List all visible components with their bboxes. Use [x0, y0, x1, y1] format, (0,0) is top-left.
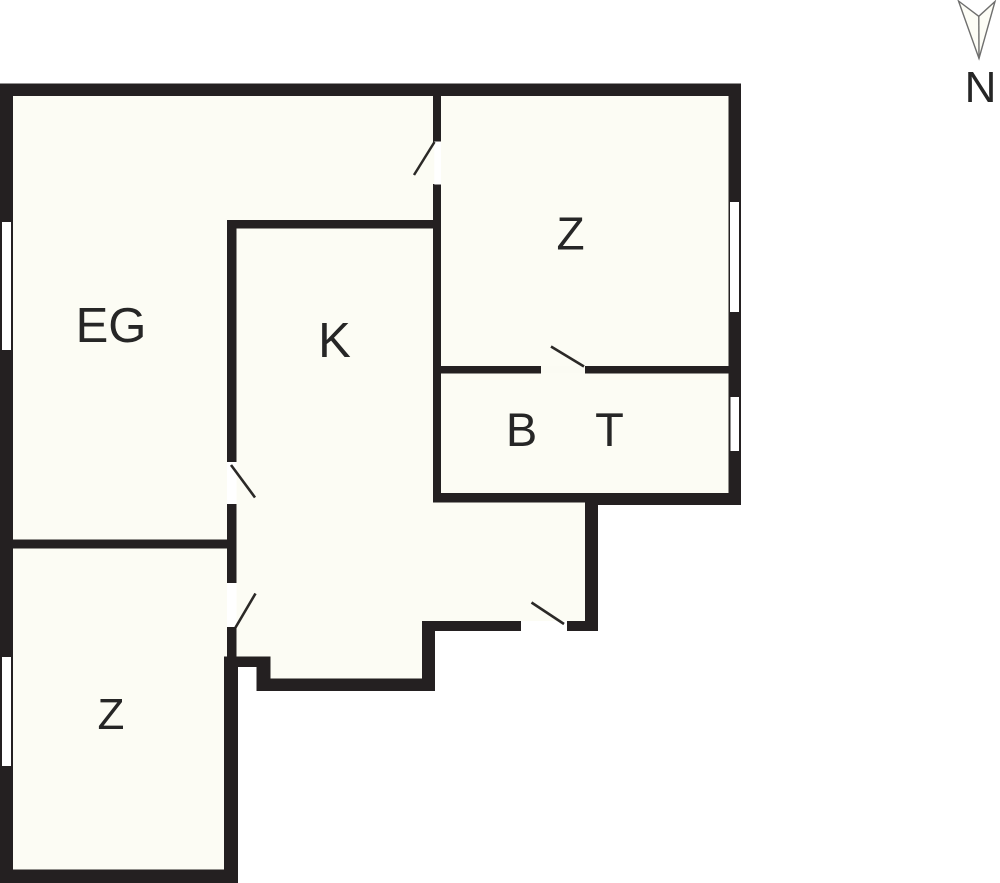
svg-text:N: N	[965, 63, 997, 112]
svg-text:Z: Z	[556, 208, 584, 260]
svg-text:T: T	[595, 403, 624, 456]
svg-text:Z: Z	[98, 690, 125, 739]
svg-text:K: K	[318, 314, 351, 368]
svg-text:B: B	[506, 403, 537, 456]
svg-text:EG: EG	[76, 299, 147, 353]
